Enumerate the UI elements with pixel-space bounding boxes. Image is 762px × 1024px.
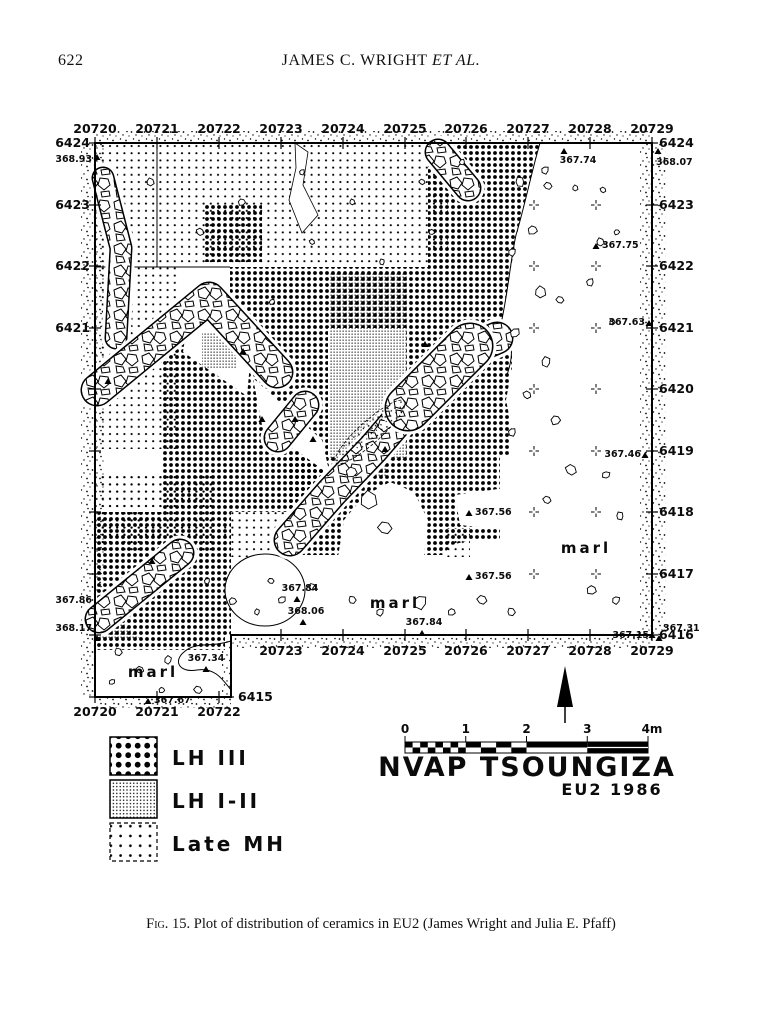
stone xyxy=(516,177,524,186)
bottom-axis-label: 20725 xyxy=(383,643,427,658)
elevation-value: 367.56 xyxy=(475,571,512,582)
left-axis-label: 6424 xyxy=(55,135,90,150)
elevation-value: 368.93 xyxy=(55,154,92,165)
right-axis-label: 6418 xyxy=(659,504,694,519)
stone xyxy=(279,597,286,603)
left-axis-label: 6423 xyxy=(55,197,90,212)
stone xyxy=(159,687,165,692)
stone xyxy=(429,229,434,234)
right-axis-label: 6420 xyxy=(659,381,694,396)
late-mh-region xyxy=(443,528,470,557)
elevation-value: 367.56 xyxy=(475,507,512,518)
top-axis-label: 20720 xyxy=(73,121,117,136)
elevation-value: 368.17 xyxy=(55,623,92,634)
bottom-axis-label: 20727 xyxy=(506,643,550,658)
scale-cell xyxy=(451,742,459,748)
map-subtitle: EU2 1986 xyxy=(561,780,662,799)
top-axis-label: 20723 xyxy=(259,121,303,136)
legend-swatch-lh3 xyxy=(110,737,157,775)
elevation-triangle-icon xyxy=(203,666,210,672)
bottom-axis-label: 20726 xyxy=(444,643,488,658)
extension-axis-label: 20721 xyxy=(135,704,179,719)
bottom-axis-label: 20728 xyxy=(568,643,612,658)
top-axis-label: 20724 xyxy=(321,121,365,136)
elevation-value: 367.75 xyxy=(602,240,639,251)
elevation-value: 367.84 xyxy=(406,617,443,628)
stone xyxy=(380,259,384,265)
elevation-value: 368.06 xyxy=(288,606,325,617)
legend-label-lh12: LH I-II xyxy=(172,789,260,813)
scale-tick-label: 4m xyxy=(642,722,663,736)
marl-label: marl xyxy=(370,594,420,612)
right-axis-label: 6416 xyxy=(659,627,694,642)
map-title: NVAP TSOUNGIZA xyxy=(378,752,676,783)
legend-label-lh3: LH III xyxy=(172,746,249,770)
top-axis-label: 20728 xyxy=(568,121,612,136)
stone xyxy=(194,686,203,693)
legend-swatch-latemh xyxy=(110,823,157,861)
top-axis-label: 20726 xyxy=(444,121,488,136)
scale-cell xyxy=(496,742,511,748)
top-axis-label: 20725 xyxy=(383,121,427,136)
right-axis-label: 6422 xyxy=(659,258,694,273)
elevation-marker: 367.86 xyxy=(55,595,92,606)
bottom-axis-label: 20723 xyxy=(259,643,303,658)
elevation-value: 367.46 xyxy=(604,449,641,460)
elevation-marker: 367.34 xyxy=(188,653,225,672)
top-axis-label: 20721 xyxy=(135,121,179,136)
right-axis-label: 6421 xyxy=(659,320,694,335)
legend-swatch-lh12 xyxy=(110,780,157,818)
left-axis-label: 6415 xyxy=(238,689,273,704)
scale-tick-label: 3 xyxy=(583,722,591,736)
stone xyxy=(300,170,305,175)
legend-label-latemh: Late MH xyxy=(172,832,286,856)
scale-cell xyxy=(527,742,588,748)
site-plan-figure: 368.93367.74368.07367.75367.63367.46367.… xyxy=(0,0,762,1024)
extension-axis-label: 20722 xyxy=(197,704,241,719)
stone xyxy=(509,429,516,437)
scale-cell xyxy=(435,742,443,748)
legend: LH III LH I-II Late MH xyxy=(110,737,286,861)
left-axis-label: 6421 xyxy=(55,320,90,335)
elevation-value: 367.86 xyxy=(55,595,92,606)
stone xyxy=(205,579,210,584)
elevation-value: 367.84 xyxy=(282,583,319,594)
figure-caption-text: Plot of distribution of ceramics in EU2 … xyxy=(190,916,616,932)
bottom-axis-label: 20729 xyxy=(630,643,674,658)
left-axis-label: 6422 xyxy=(55,258,90,273)
marl-label: marl xyxy=(561,539,611,557)
top-axis-label: 20729 xyxy=(630,121,674,136)
stone xyxy=(448,609,455,615)
elevation-value: 368.07 xyxy=(656,157,693,168)
lh3-region xyxy=(203,205,262,262)
elevation-value: 367.74 xyxy=(560,155,597,166)
right-axis-label: 6423 xyxy=(659,197,694,212)
stone xyxy=(603,472,610,478)
figure-caption-label: Fig. 15. xyxy=(146,916,190,932)
scale-tick-label: 1 xyxy=(462,722,470,736)
right-axis-label: 6424 xyxy=(659,135,694,150)
figure-caption: Fig. 15. Plot of distribution of ceramic… xyxy=(0,916,762,933)
bottom-axis-label: 20724 xyxy=(321,643,365,658)
elevation-value: 367.34 xyxy=(188,653,225,664)
north-arrow xyxy=(557,666,573,723)
marl-label: marl xyxy=(128,663,178,681)
elevation-value: 367.63 xyxy=(608,317,645,328)
late-mh-region xyxy=(95,143,448,267)
scale-cell xyxy=(466,742,481,748)
stone xyxy=(350,199,355,205)
stone xyxy=(255,609,259,615)
scale-tick-label: 0 xyxy=(401,722,409,736)
right-axis-label: 6419 xyxy=(659,443,694,458)
north-arrow-head xyxy=(557,666,573,707)
right-axis-label: 6417 xyxy=(659,566,694,581)
scale-tick-label: 2 xyxy=(522,722,530,736)
top-axis-label: 20727 xyxy=(506,121,550,136)
scanned-paper-page: 622 JAMES C. WRIGHT ET AL. xyxy=(0,0,762,1024)
top-axis-label: 20722 xyxy=(197,121,241,136)
stone xyxy=(617,512,623,520)
stone xyxy=(573,185,578,191)
scale-bar: 01234m xyxy=(401,722,663,753)
scale-cell xyxy=(420,742,428,748)
stone xyxy=(109,680,114,685)
extension-axis-label: 20720 xyxy=(73,704,117,719)
scale-cell xyxy=(405,742,413,748)
